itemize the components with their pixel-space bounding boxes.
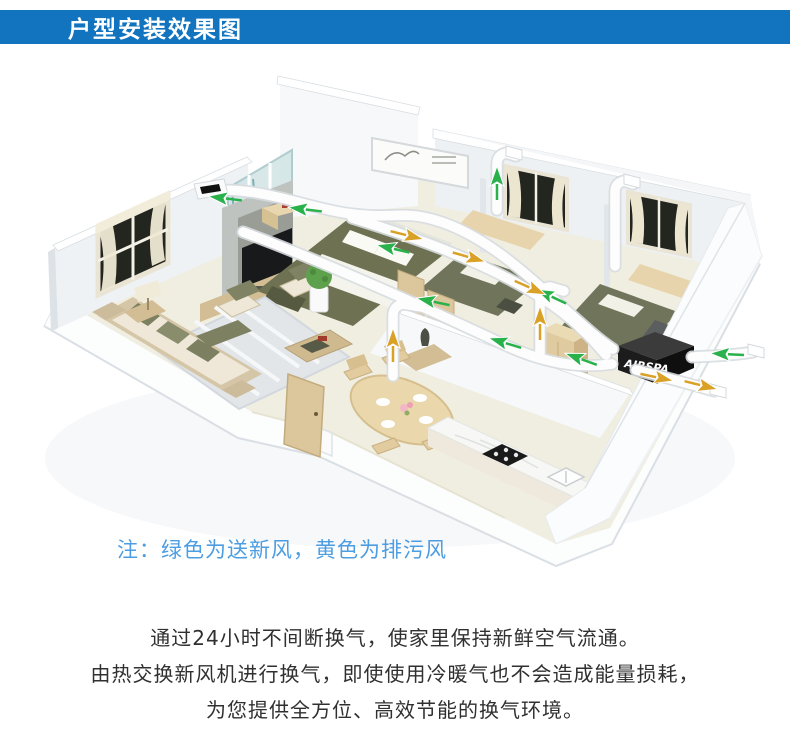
description-line: 通过24小时不间断换气，使家里保持新鲜空气流通。 bbox=[0, 620, 790, 656]
description-line: 由热交换新风机进行换气，即使使用冷暖气也不会造成能量损耗， bbox=[0, 656, 790, 692]
window-bedroom2 bbox=[505, 166, 567, 230]
door-dining bbox=[284, 374, 324, 457]
window-bedroom3 bbox=[628, 192, 690, 256]
description-line: 为您提供全方位、高效节能的换气环境。 bbox=[0, 692, 790, 728]
legend-note: 注：绿色为送新风，黄色为排污风 bbox=[117, 534, 447, 564]
page-title: 户型安装效果图 bbox=[68, 10, 243, 44]
description: 通过24小时不间断换气，使家里保持新鲜空气流通。 由热交换新风机进行换气，即使使… bbox=[0, 620, 790, 728]
page: 户型安装效果图 bbox=[0, 0, 790, 756]
floorplan-illustration: AIRSPA bbox=[0, 58, 790, 588]
header-bar: 户型安装效果图 bbox=[0, 10, 790, 44]
